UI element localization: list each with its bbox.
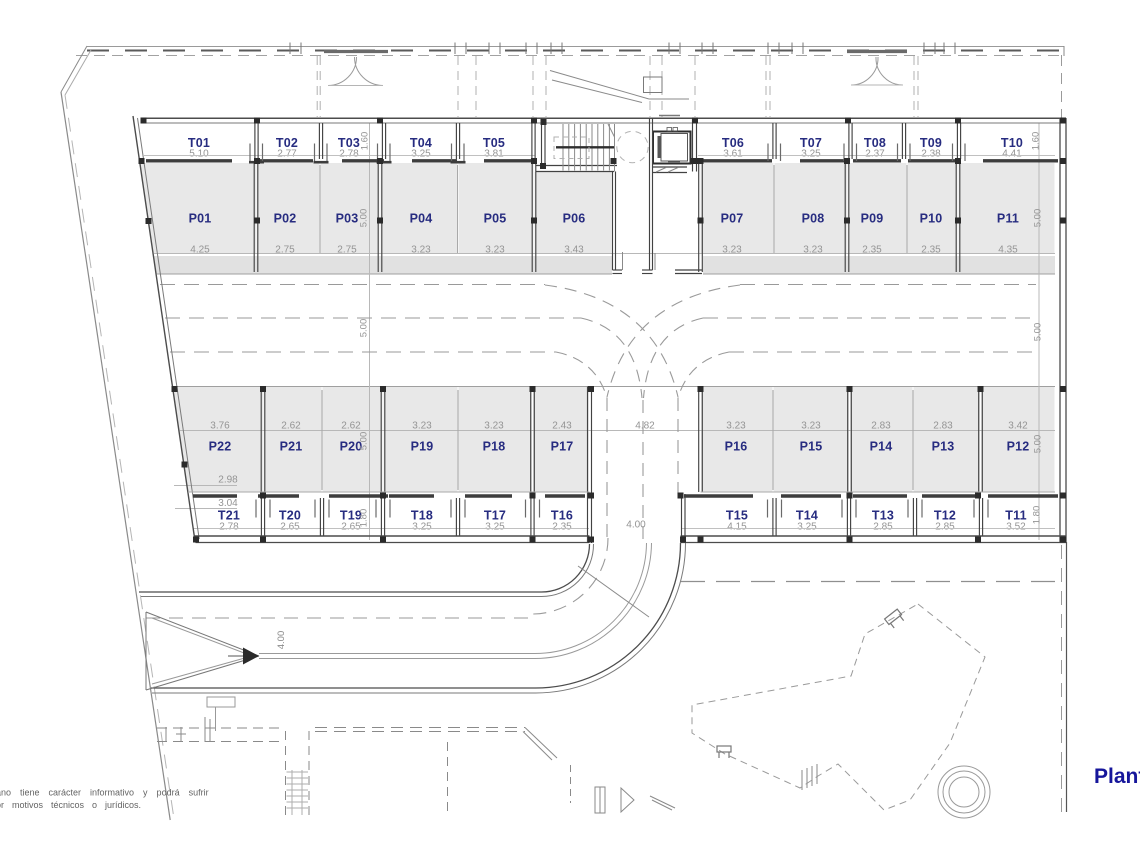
svg-text:P12: P12	[1007, 440, 1030, 454]
svg-text:3.25: 3.25	[411, 149, 431, 160]
svg-text:P08: P08	[802, 212, 825, 226]
svg-text:T12: T12	[934, 509, 956, 523]
svg-text:P11: P11	[997, 212, 1019, 226]
svg-text:T16: T16	[551, 509, 573, 523]
svg-text:5.00: 5.00	[359, 432, 370, 451]
svg-text:P21: P21	[280, 440, 303, 454]
svg-text:3.61: 3.61	[723, 149, 743, 160]
svg-text:5.10: 5.10	[189, 149, 209, 160]
svg-text:3.23: 3.23	[726, 421, 746, 432]
svg-text:por motivos técnicos o jurídic: por motivos técnicos o jurídicos.	[0, 800, 141, 810]
svg-text:2.43: 2.43	[552, 421, 572, 432]
svg-text:2.78: 2.78	[339, 149, 359, 160]
svg-text:4.15: 4.15	[727, 522, 747, 533]
svg-text:P19: P19	[411, 440, 434, 454]
svg-text:2.83: 2.83	[933, 421, 953, 432]
svg-text:P22: P22	[209, 440, 232, 454]
svg-text:2.62: 2.62	[281, 421, 301, 432]
svg-text:1.80: 1.80	[359, 509, 370, 528]
svg-text:4.41: 4.41	[1002, 149, 1022, 160]
svg-text:T14: T14	[796, 509, 818, 523]
svg-text:2.83: 2.83	[871, 421, 891, 432]
svg-text:2.78: 2.78	[219, 522, 239, 533]
svg-text:2.85: 2.85	[935, 522, 955, 533]
svg-text:5.00: 5.00	[359, 319, 370, 338]
svg-text:P05: P05	[484, 212, 507, 226]
svg-text:2.62: 2.62	[341, 421, 361, 432]
svg-text:Planta: Planta	[1094, 765, 1140, 788]
svg-text:P06: P06	[563, 212, 586, 226]
svg-text:P14: P14	[870, 440, 893, 454]
svg-text:3.23: 3.23	[484, 421, 504, 432]
svg-text:3.25: 3.25	[485, 522, 505, 533]
svg-text:ano tiene carácter informativo: ano tiene carácter informativo y podrá s…	[0, 788, 209, 798]
svg-text:2.85: 2.85	[873, 522, 893, 533]
svg-text:3.76: 3.76	[210, 421, 230, 432]
svg-text:3.42: 3.42	[1008, 421, 1028, 432]
svg-text:P18: P18	[483, 440, 506, 454]
svg-text:2.35: 2.35	[552, 522, 572, 533]
svg-text:3.23: 3.23	[801, 421, 821, 432]
svg-text:P01: P01	[189, 212, 212, 226]
svg-text:T17: T17	[484, 509, 506, 523]
svg-text:3.81: 3.81	[484, 149, 504, 160]
svg-text:T15: T15	[726, 509, 748, 523]
svg-text:P15: P15	[800, 440, 823, 454]
svg-text:4.00: 4.00	[276, 631, 287, 650]
svg-text:P13: P13	[932, 440, 955, 454]
svg-text:P09: P09	[861, 212, 884, 226]
svg-text:2.65: 2.65	[280, 522, 300, 533]
svg-text:T13: T13	[872, 509, 894, 523]
svg-text:5.00: 5.00	[1033, 323, 1044, 342]
svg-text:5.00: 5.00	[1033, 209, 1044, 228]
svg-text:3.04: 3.04	[218, 498, 238, 509]
svg-text:3.25: 3.25	[801, 149, 821, 160]
svg-text:1.60: 1.60	[1031, 132, 1042, 151]
svg-text:P17: P17	[551, 440, 574, 454]
svg-text:P10: P10	[920, 212, 943, 226]
svg-text:T11: T11	[1005, 509, 1026, 523]
svg-text:P02: P02	[274, 212, 297, 226]
svg-text:T18: T18	[411, 509, 433, 523]
svg-text:T20: T20	[279, 509, 301, 523]
svg-text:P07: P07	[721, 212, 744, 226]
svg-text:1.80: 1.80	[1032, 506, 1043, 525]
svg-text:1.60: 1.60	[360, 132, 371, 151]
svg-text:P04: P04	[410, 212, 433, 226]
svg-text:2.98: 2.98	[218, 475, 238, 486]
svg-text:3.25: 3.25	[412, 522, 432, 533]
svg-text:P16: P16	[725, 440, 748, 454]
svg-text:T21: T21	[218, 509, 240, 523]
svg-text:5.00: 5.00	[359, 209, 370, 228]
svg-text:4.82: 4.82	[635, 421, 655, 432]
svg-text:2.37: 2.37	[865, 149, 885, 160]
svg-text:3.25: 3.25	[797, 522, 817, 533]
svg-text:3.52: 3.52	[1006, 522, 1026, 533]
svg-text:2.77: 2.77	[277, 149, 297, 160]
svg-text:3.23: 3.23	[412, 421, 432, 432]
svg-text:2.38: 2.38	[921, 149, 941, 160]
svg-text:5.00: 5.00	[1033, 435, 1044, 454]
svg-text:P03: P03	[336, 212, 359, 226]
